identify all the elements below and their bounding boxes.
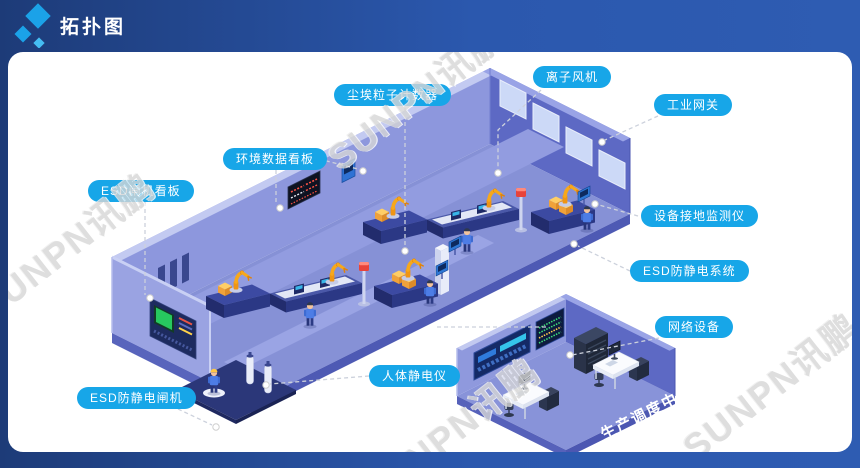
static-tester-pillar (247, 352, 254, 384)
label-dust-particle-counter[interactable]: 尘埃粒子计数器 (334, 84, 451, 106)
label-esd-antistatic-system[interactable]: ESD防静电系统 (630, 260, 749, 282)
label-body-static-meter[interactable]: 人体静电仪 (369, 365, 460, 387)
diamond-cluster-icon (12, 2, 56, 48)
topology-canvas: 生产调度中心 (8, 52, 852, 452)
label-env-data-board[interactable]: 环境数据看板 (223, 148, 327, 170)
label-industrial-gateway[interactable]: 工业网关 (654, 94, 732, 116)
label-ion-fan[interactable]: 离子风机 (533, 66, 611, 88)
label-network-device[interactable]: 网络设备 (655, 316, 733, 338)
page-title: 拓扑图 (60, 12, 126, 39)
header-bar: 拓扑图 (0, 0, 860, 50)
label-esd-antistatic-gate[interactable]: ESD防静电闸机 (77, 387, 196, 409)
label-esd-gate-board[interactable]: ESD闸机看板 (88, 180, 194, 202)
label-device-grounding-monitor[interactable]: 设备接地监测仪 (641, 205, 758, 227)
